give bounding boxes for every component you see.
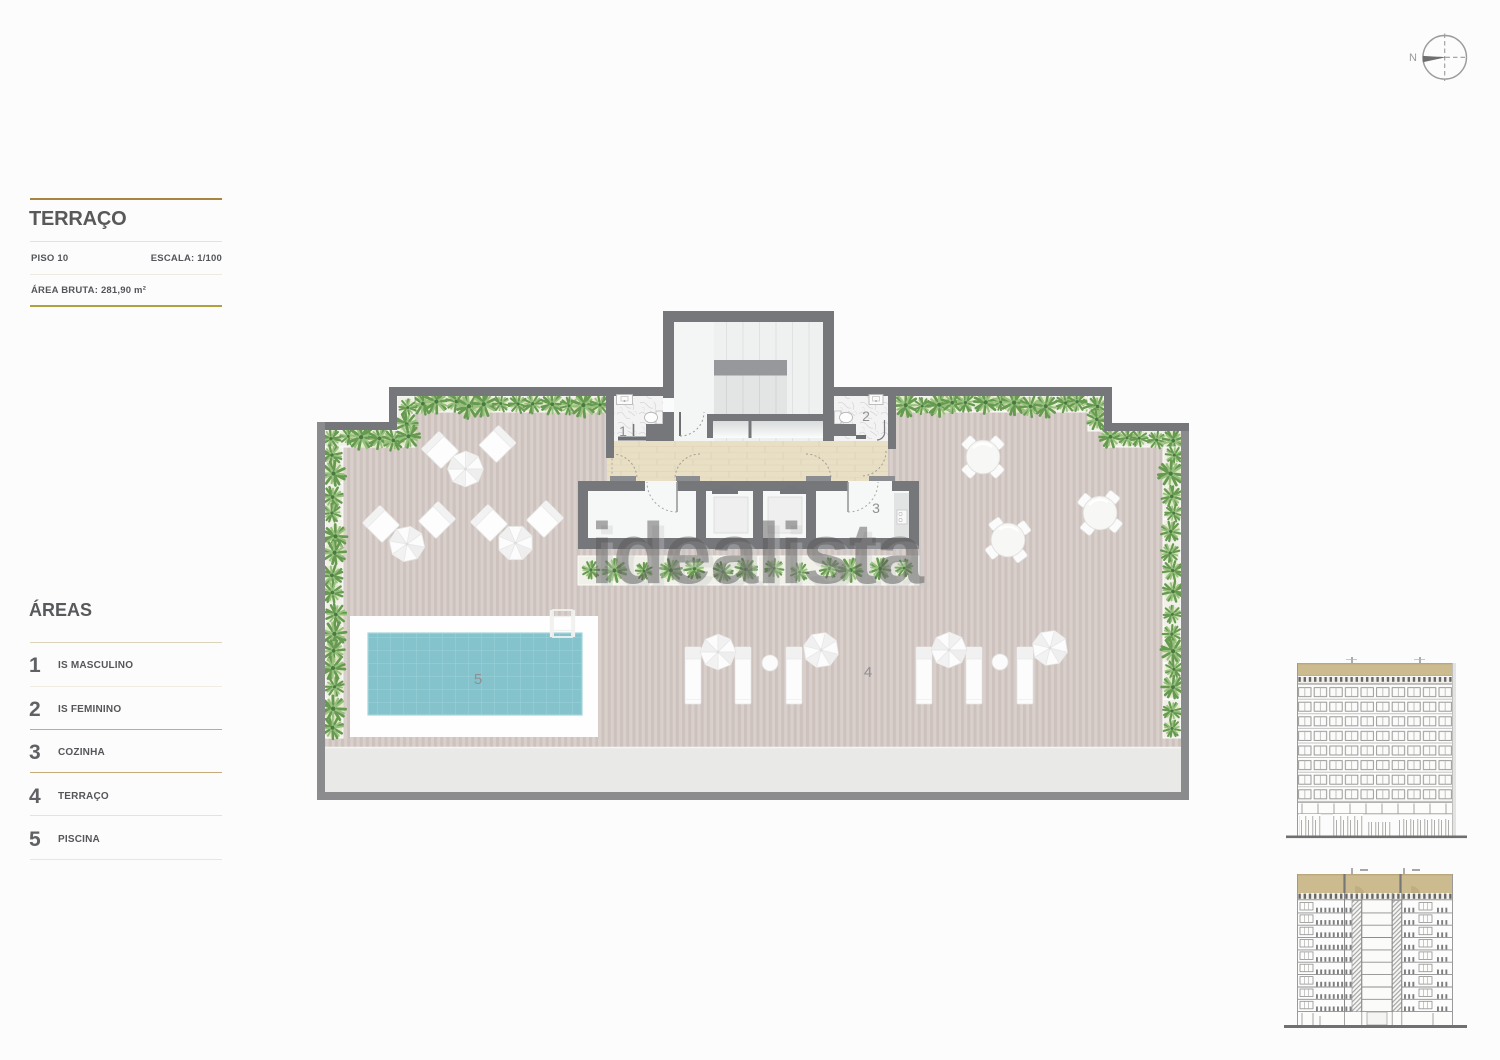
svg-text:N: N (1409, 52, 1417, 64)
svg-text:5: 5 (474, 671, 482, 688)
svg-text:4: 4 (864, 664, 872, 681)
svg-text:1: 1 (619, 423, 627, 439)
svg-text:2: 2 (862, 408, 870, 424)
